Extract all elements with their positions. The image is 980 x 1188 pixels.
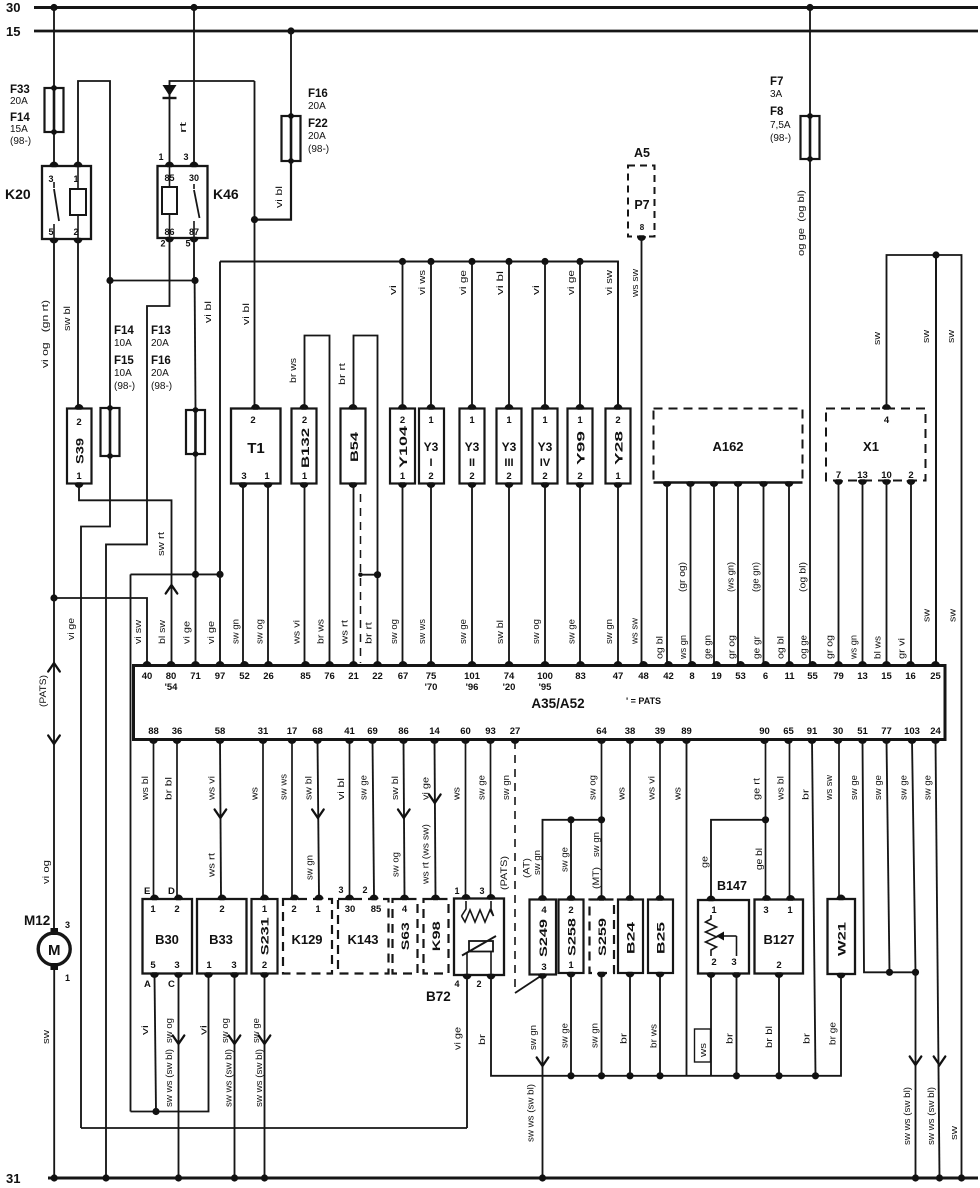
svg-text:sw ws (sw bl): sw ws (sw bl) — [224, 1049, 234, 1107]
svg-text:20A: 20A — [151, 368, 169, 379]
svg-text:sw bl: sw bl — [62, 306, 72, 331]
svg-text:(MT): (MT) — [591, 867, 601, 889]
svg-text:25: 25 — [930, 671, 941, 682]
svg-text:4: 4 — [454, 979, 459, 989]
svg-text:11: 11 — [784, 671, 795, 682]
svg-text:vi og (gn rt): vi og (gn rt) — [40, 300, 50, 368]
svg-text:sw ge: sw ge — [899, 775, 909, 800]
svg-text:br: br — [801, 789, 811, 800]
svg-text:(AT): (AT) — [522, 858, 532, 878]
svg-text:1: 1 — [400, 471, 406, 482]
svg-text:1: 1 — [150, 904, 156, 915]
svg-text:M12: M12 — [24, 913, 50, 928]
svg-text:(PATS): (PATS) — [38, 675, 48, 707]
svg-text:vi: vi — [531, 285, 541, 295]
svg-text:vi og: vi og — [41, 860, 51, 884]
svg-text:3: 3 — [338, 885, 343, 895]
svg-text:85: 85 — [300, 671, 311, 682]
svg-text:sw rt: sw rt — [156, 531, 166, 556]
svg-text:100: 100 — [537, 671, 553, 682]
svg-text:ge: ge — [700, 856, 710, 868]
svg-text:B54: B54 — [349, 431, 361, 462]
svg-text:'54: '54 — [165, 682, 179, 693]
svg-text:2: 2 — [76, 417, 81, 428]
svg-text:F13: F13 — [151, 325, 171, 337]
svg-text:sw og: sw og — [255, 619, 265, 644]
svg-text:'96: '96 — [466, 682, 479, 693]
svg-text:S258: S258 — [567, 918, 579, 956]
svg-text:br ws: br ws — [288, 357, 298, 383]
svg-text:(gr og): (gr og) — [677, 562, 687, 592]
svg-text:sw ge: sw ge — [359, 775, 369, 800]
svg-text:5: 5 — [185, 239, 190, 249]
svg-text:4: 4 — [884, 415, 890, 426]
svg-text:48: 48 — [638, 671, 649, 682]
svg-text:sw gn: sw gn — [532, 850, 542, 875]
svg-text:27: 27 — [510, 726, 521, 737]
svg-text:3: 3 — [183, 152, 188, 162]
svg-text:2: 2 — [174, 904, 179, 915]
svg-text:2: 2 — [615, 415, 620, 426]
svg-text:sw og: sw og — [164, 1018, 174, 1043]
svg-text:3: 3 — [174, 960, 179, 971]
svg-text:47: 47 — [613, 671, 624, 682]
svg-text:S63: S63 — [400, 922, 412, 950]
svg-text:19: 19 — [711, 671, 722, 682]
svg-text:br: br — [619, 1033, 629, 1044]
svg-text:2: 2 — [250, 415, 255, 426]
svg-text:S249: S249 — [538, 919, 550, 957]
svg-text:vi bl: vi bl — [274, 186, 284, 208]
svg-text:5: 5 — [150, 960, 156, 971]
svg-text:38: 38 — [625, 726, 636, 737]
svg-text:83: 83 — [575, 671, 586, 682]
svg-text:ws rt: ws rt — [207, 852, 217, 878]
svg-text:vi ws: vi ws — [417, 269, 427, 295]
svg-text:br bl: br bl — [164, 777, 174, 800]
svg-text:ws bl: ws bl — [776, 776, 786, 801]
svg-text:sw: sw — [946, 329, 956, 343]
svg-text:B127: B127 — [763, 932, 794, 947]
svg-text:br bl: br bl — [764, 1026, 774, 1048]
svg-text:2: 2 — [469, 471, 474, 482]
svg-text:4: 4 — [402, 904, 408, 915]
svg-text:P7: P7 — [634, 198, 649, 212]
svg-text:B24: B24 — [626, 921, 638, 954]
svg-text:S39: S39 — [75, 438, 87, 464]
svg-text:77: 77 — [881, 726, 892, 737]
svg-text:31: 31 — [6, 1171, 20, 1186]
svg-text:ws: ws — [617, 786, 627, 801]
svg-text:15A: 15A — [10, 124, 28, 135]
svg-text:ws gn: ws gn — [678, 635, 688, 660]
svg-text:15: 15 — [881, 671, 892, 682]
svg-text:E: E — [144, 886, 150, 897]
svg-text:3: 3 — [763, 905, 768, 916]
svg-text:bl sw: bl sw — [157, 619, 167, 644]
svg-text:sw: sw — [921, 329, 931, 343]
svg-text:2: 2 — [160, 239, 165, 249]
svg-text:og bl: og bl — [655, 636, 665, 659]
svg-text:2: 2 — [476, 979, 481, 989]
svg-text:sw ge: sw ge — [873, 775, 883, 800]
svg-text:3: 3 — [541, 962, 546, 973]
svg-text:og ge: og ge — [799, 635, 809, 659]
svg-text:F7: F7 — [770, 76, 783, 88]
svg-text:14: 14 — [429, 726, 440, 737]
svg-text:3: 3 — [65, 920, 70, 930]
svg-text:III: III — [504, 457, 513, 469]
svg-text:2: 2 — [362, 885, 367, 895]
svg-text:ws gn: ws gn — [849, 635, 859, 660]
svg-text:1: 1 — [568, 960, 574, 971]
svg-text:1: 1 — [787, 905, 793, 916]
svg-text:Y3: Y3 — [465, 440, 480, 454]
svg-text:sw: sw — [949, 1125, 959, 1140]
svg-text:vi: vi — [140, 1025, 150, 1035]
svg-text:A: A — [144, 979, 151, 990]
svg-text:8: 8 — [640, 223, 645, 232]
svg-text:Y3: Y3 — [424, 440, 439, 454]
svg-text:bl ws: bl ws — [873, 635, 883, 659]
svg-text:(98-): (98-) — [770, 133, 791, 144]
svg-text:br ws: br ws — [649, 1023, 659, 1048]
svg-text:B30: B30 — [155, 932, 179, 947]
svg-text:vi bl: vi bl — [336, 778, 346, 800]
svg-text:K129: K129 — [291, 932, 322, 947]
svg-text:vi bl: vi bl — [241, 303, 251, 325]
svg-text:2: 2 — [291, 904, 296, 915]
svg-text:rt: rt — [178, 121, 188, 133]
svg-text:sw ws (sw bl): sw ws (sw bl) — [254, 1049, 264, 1107]
svg-text:K143: K143 — [347, 932, 378, 947]
svg-text:Y28: Y28 — [614, 431, 626, 465]
svg-text:Y3: Y3 — [502, 440, 517, 454]
svg-text:vi ge: vi ge — [566, 270, 576, 295]
svg-text:67: 67 — [398, 671, 409, 682]
svg-text:69: 69 — [367, 726, 378, 737]
svg-text:F22: F22 — [308, 118, 328, 130]
svg-text:20A: 20A — [308, 101, 326, 112]
svg-text:ws vi: ws vi — [292, 620, 302, 645]
svg-text:II: II — [469, 457, 475, 469]
svg-text:ws sw: ws sw — [630, 617, 640, 645]
svg-text:br: br — [477, 1034, 487, 1045]
svg-text:3: 3 — [241, 471, 246, 482]
svg-text:ws vi: ws vi — [647, 776, 657, 801]
svg-text:ws: ws — [250, 786, 260, 801]
svg-text:31: 31 — [258, 726, 269, 737]
svg-text:1: 1 — [262, 904, 268, 915]
svg-text:sw bl: sw bl — [390, 776, 400, 800]
svg-text:3: 3 — [731, 957, 736, 968]
svg-text:2: 2 — [577, 471, 582, 482]
svg-text:76: 76 — [324, 671, 335, 682]
svg-text:sw ws (sw bl): sw ws (sw bl) — [926, 1087, 936, 1145]
svg-text:br ws: br ws — [316, 618, 326, 644]
svg-text:64: 64 — [596, 726, 607, 737]
svg-text:K98: K98 — [431, 921, 443, 951]
svg-text:F33: F33 — [10, 84, 30, 96]
svg-text:sw: sw — [872, 331, 882, 345]
svg-text:Y3: Y3 — [538, 440, 553, 454]
svg-text:3: 3 — [479, 886, 484, 896]
svg-text:vi bl: vi bl — [203, 301, 213, 323]
svg-text:30: 30 — [6, 0, 20, 15]
svg-text:3A: 3A — [770, 89, 783, 100]
svg-text:T1: T1 — [247, 440, 265, 457]
svg-text:br ge: br ge — [828, 1022, 838, 1045]
svg-text:sw bl: sw bl — [304, 776, 314, 800]
svg-text:C: C — [168, 979, 175, 990]
svg-text:74: 74 — [504, 671, 515, 682]
svg-text:B72: B72 — [426, 989, 451, 1004]
svg-text:A162: A162 — [712, 439, 743, 454]
svg-text:sw og: sw og — [389, 619, 399, 644]
svg-text:sw ws (sw bl): sw ws (sw bl) — [902, 1087, 912, 1145]
svg-text:X1: X1 — [863, 439, 879, 454]
svg-text:vi: vi — [388, 285, 398, 295]
svg-text:sw: sw — [948, 608, 958, 622]
svg-text:1: 1 — [76, 471, 82, 482]
svg-text:B25: B25 — [656, 922, 668, 954]
svg-text:2: 2 — [428, 471, 433, 482]
svg-text:ws: ws — [673, 786, 683, 801]
svg-text:B33: B33 — [209, 932, 233, 947]
svg-text:F16: F16 — [151, 355, 171, 367]
svg-text:sw gn: sw gn — [591, 832, 601, 857]
svg-text:30: 30 — [189, 173, 199, 183]
svg-text:1: 1 — [315, 904, 321, 915]
svg-text:3: 3 — [48, 174, 53, 184]
svg-text:sw gn: sw gn — [604, 619, 614, 644]
svg-text:5: 5 — [48, 227, 53, 237]
svg-text:1: 1 — [302, 471, 308, 482]
svg-text:41: 41 — [344, 726, 355, 737]
svg-text:W21: W21 — [837, 922, 849, 956]
svg-text:1: 1 — [506, 415, 512, 426]
svg-text:1: 1 — [158, 152, 163, 162]
svg-text:F15: F15 — [114, 355, 134, 367]
svg-text:1: 1 — [615, 471, 621, 482]
svg-text:42: 42 — [663, 671, 674, 682]
svg-text:br rt: br rt — [364, 621, 374, 644]
svg-text:sw gn: sw gn — [305, 855, 315, 880]
svg-text:S259: S259 — [597, 918, 609, 956]
svg-text:sw gn: sw gn — [231, 619, 241, 644]
svg-text:6: 6 — [763, 671, 768, 682]
svg-text:vi sw: vi sw — [604, 269, 614, 295]
svg-text:S231: S231 — [260, 917, 272, 955]
svg-text:sw ge: sw ge — [923, 775, 933, 800]
svg-text:22: 22 — [372, 671, 383, 682]
svg-text:'20: '20 — [503, 682, 516, 693]
svg-text:75: 75 — [426, 671, 437, 682]
svg-text:ws rt: ws rt — [340, 619, 350, 645]
svg-text:(PATS): (PATS) — [499, 856, 509, 890]
svg-text:2: 2 — [302, 415, 307, 426]
svg-text:sw gn: sw gn — [590, 1023, 600, 1048]
svg-text:51: 51 — [857, 726, 868, 737]
svg-text:sw ge: sw ge — [458, 619, 468, 644]
svg-text:2: 2 — [219, 904, 224, 915]
svg-text:68: 68 — [312, 726, 323, 737]
svg-text:1: 1 — [206, 960, 212, 971]
svg-text:Y104: Y104 — [398, 425, 410, 468]
svg-text:ge gn: ge gn — [703, 635, 713, 659]
svg-text:F8: F8 — [770, 106, 784, 118]
svg-text:21: 21 — [348, 671, 359, 682]
svg-text:2: 2 — [568, 905, 573, 916]
svg-text:sw ge: sw ge — [567, 619, 577, 644]
svg-text:(98-): (98-) — [151, 381, 172, 392]
svg-text:16: 16 — [905, 671, 916, 682]
svg-text:24: 24 — [930, 726, 941, 737]
svg-text:sw gn: sw gn — [501, 775, 511, 800]
svg-text:vi ge: vi ge — [421, 777, 431, 800]
svg-text:br rt: br rt — [337, 362, 347, 385]
svg-text:gr og: gr og — [727, 635, 737, 659]
svg-text:sw bl: sw bl — [495, 620, 505, 644]
svg-text:Y99: Y99 — [576, 431, 588, 465]
svg-text:og bl: og bl — [776, 636, 786, 659]
svg-text:vi ge: vi ge — [182, 621, 192, 644]
svg-text:60: 60 — [460, 726, 471, 737]
svg-text:52: 52 — [239, 671, 250, 682]
svg-text:53: 53 — [735, 671, 746, 682]
svg-text:sw ge: sw ge — [849, 775, 859, 800]
svg-text:F14: F14 — [10, 112, 30, 124]
svg-text:sw ge: sw ge — [251, 1018, 261, 1043]
svg-text:26: 26 — [263, 671, 274, 682]
svg-text:ws bl: ws bl — [140, 776, 150, 801]
svg-text:vi ge: vi ge — [458, 270, 468, 295]
svg-text:sw og: sw og — [531, 619, 541, 644]
svg-text:2: 2 — [400, 415, 405, 426]
svg-text:sw og: sw og — [220, 1018, 230, 1043]
svg-text:vi ge: vi ge — [453, 1027, 463, 1050]
svg-text:90: 90 — [759, 726, 770, 737]
svg-text:39: 39 — [655, 726, 666, 737]
svg-text:gr vi: gr vi — [897, 638, 907, 659]
svg-text:K20: K20 — [5, 186, 31, 202]
svg-text:91: 91 — [807, 726, 818, 737]
svg-text:40: 40 — [142, 671, 153, 682]
svg-text:1: 1 — [542, 415, 548, 426]
svg-text:ws: ws — [698, 1042, 708, 1058]
svg-text:8: 8 — [689, 671, 694, 682]
svg-text:ws rt (ws sw): ws rt (ws sw) — [421, 824, 431, 885]
svg-text:sw ge: sw ge — [477, 775, 487, 800]
svg-text:20A: 20A — [151, 338, 169, 349]
svg-text:(98-): (98-) — [114, 381, 135, 392]
svg-text:F14: F14 — [114, 325, 134, 337]
svg-text:55: 55 — [807, 671, 818, 682]
svg-text:sw ge: sw ge — [560, 1023, 570, 1048]
svg-text:30: 30 — [833, 726, 844, 737]
svg-text:2: 2 — [711, 957, 716, 968]
svg-text:sw ws (sw bl): sw ws (sw bl) — [164, 1049, 174, 1107]
svg-text:20A: 20A — [10, 96, 28, 107]
svg-text:F16: F16 — [308, 88, 328, 100]
svg-text:ge gr: ge gr — [752, 636, 762, 659]
svg-text:89: 89 — [681, 726, 692, 737]
svg-text:1: 1 — [428, 415, 434, 426]
svg-text:B147: B147 — [717, 879, 747, 893]
svg-text:10A: 10A — [114, 338, 132, 349]
svg-text:15: 15 — [6, 24, 20, 39]
svg-text:(ws gn): (ws gn) — [726, 562, 736, 592]
svg-text:30: 30 — [345, 904, 356, 915]
svg-text:ws vi: ws vi — [207, 776, 217, 801]
svg-text:(98-): (98-) — [308, 144, 329, 155]
svg-text:vi ge: vi ge — [66, 618, 76, 640]
svg-text:vi: vi — [199, 1025, 209, 1035]
svg-text:vi bl: vi bl — [495, 271, 505, 295]
svg-text:65: 65 — [783, 726, 794, 737]
svg-text:2: 2 — [776, 960, 781, 971]
svg-text:1: 1 — [454, 886, 459, 896]
svg-text:sw: sw — [41, 1029, 51, 1044]
svg-text:og ge (og bl): og ge (og bl) — [796, 190, 806, 256]
svg-text:2: 2 — [262, 960, 267, 971]
svg-text:3: 3 — [231, 960, 236, 971]
svg-text:sw ws (sw bl): sw ws (sw bl) — [526, 1084, 536, 1142]
svg-text:(ge gn): (ge gn) — [751, 562, 761, 592]
svg-text:A35/A52: A35/A52 — [531, 696, 584, 711]
svg-text:sw ws: sw ws — [417, 618, 427, 644]
svg-text:ge bl: ge bl — [754, 848, 764, 870]
svg-text:sw gn: sw gn — [528, 1025, 538, 1050]
svg-text:4: 4 — [541, 905, 547, 916]
svg-text:2: 2 — [506, 471, 511, 482]
svg-text:br: br — [802, 1033, 812, 1044]
svg-text:'95: '95 — [539, 682, 553, 693]
svg-text:103: 103 — [904, 726, 920, 737]
svg-text:I: I — [429, 457, 432, 469]
svg-text:1: 1 — [577, 415, 583, 426]
svg-text:IV: IV — [540, 457, 551, 469]
svg-text:20A: 20A — [308, 131, 326, 142]
svg-text:vi sw: vi sw — [133, 619, 143, 644]
svg-text:sw: sw — [922, 608, 932, 622]
svg-text:sw ws: sw ws — [279, 773, 289, 800]
svg-text:A5: A5 — [634, 146, 650, 160]
svg-text:sw ge: sw ge — [560, 847, 570, 872]
svg-text:ge rt: ge rt — [752, 777, 762, 800]
svg-text:93: 93 — [485, 726, 496, 737]
svg-text:sw og: sw og — [588, 775, 598, 800]
svg-text:vi ge: vi ge — [206, 621, 216, 644]
svg-text:K46: K46 — [213, 186, 239, 202]
svg-text:7,5A: 7,5A — [770, 120, 791, 131]
svg-text:'70: '70 — [425, 682, 438, 693]
svg-text:86: 86 — [398, 726, 409, 737]
svg-text:97: 97 — [215, 671, 226, 682]
svg-text:ws sw: ws sw — [630, 268, 640, 298]
svg-text:1: 1 — [65, 973, 70, 983]
svg-text:B132: B132 — [300, 428, 312, 468]
svg-text:M: M — [48, 942, 61, 959]
svg-text:1: 1 — [264, 471, 270, 482]
svg-text:ws: ws — [452, 786, 462, 801]
svg-text:D: D — [168, 886, 175, 897]
svg-text:71: 71 — [190, 671, 201, 682]
svg-text:1: 1 — [711, 905, 717, 916]
svg-text:10A: 10A — [114, 368, 132, 379]
svg-text:80: 80 — [166, 671, 177, 682]
svg-text:88: 88 — [148, 726, 159, 737]
